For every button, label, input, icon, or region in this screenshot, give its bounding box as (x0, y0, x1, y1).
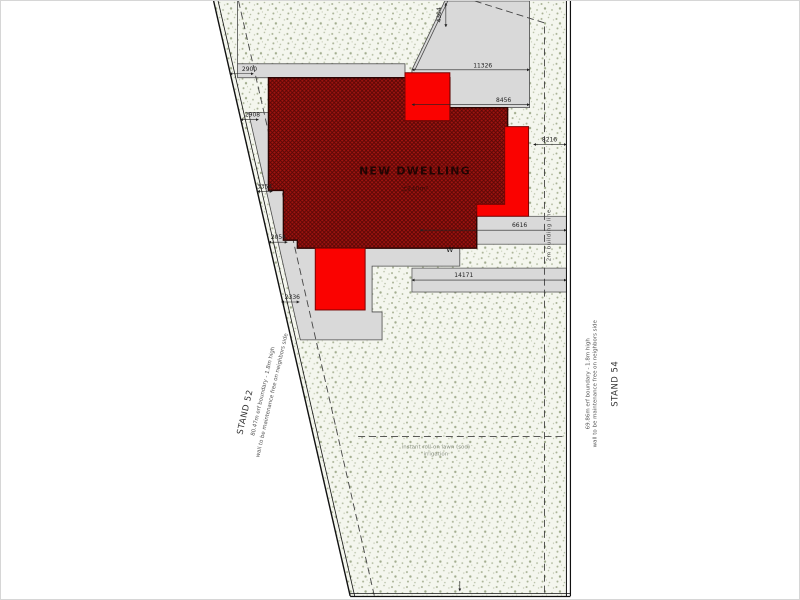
dim-label-2054: 2054 (271, 234, 286, 241)
dim-label-6616: 6616 (512, 222, 527, 229)
dim-label-8456: 8456 (496, 97, 511, 104)
dim-label-8216: 8216 (542, 137, 557, 144)
site-plan-page: 11326 8456 8216 6616 14171 2900 2908 335… (0, 0, 800, 600)
dim-label-2336: 2336 (285, 294, 300, 301)
yard-note-line1: instant roll-on lawn (sod) (402, 445, 470, 451)
right-boundary-note-1: 69.86m erf boundary - 1.8m high (585, 338, 591, 429)
window-mark: W (446, 246, 453, 254)
dim-label-2908: 2908 (245, 112, 260, 119)
new-work-top (405, 73, 450, 121)
dim-label-3354: 3354 (257, 183, 272, 190)
building-line-label: 2m building line (546, 209, 552, 261)
right-boundary-note-2: wall to be maintenance free on neighbors… (592, 319, 598, 447)
dwelling-area: ±240m² (402, 184, 429, 192)
yard-note-line2: irrigation (424, 451, 449, 457)
dim-label-4304: 4304 (436, 7, 443, 22)
site-plan-drawing: 11326 8456 8216 6616 14171 2900 2908 335… (0, 0, 800, 600)
top-terrace (238, 64, 405, 78)
dwelling-title: NEW DWELLING (359, 164, 471, 177)
stand-54-label: STAND 54 (609, 361, 619, 407)
dim-label-11326: 11326 (473, 62, 492, 69)
new-work-bottom (315, 248, 365, 310)
dim-label-14171: 14171 (454, 272, 473, 279)
dim-label-2900: 2900 (242, 66, 257, 73)
